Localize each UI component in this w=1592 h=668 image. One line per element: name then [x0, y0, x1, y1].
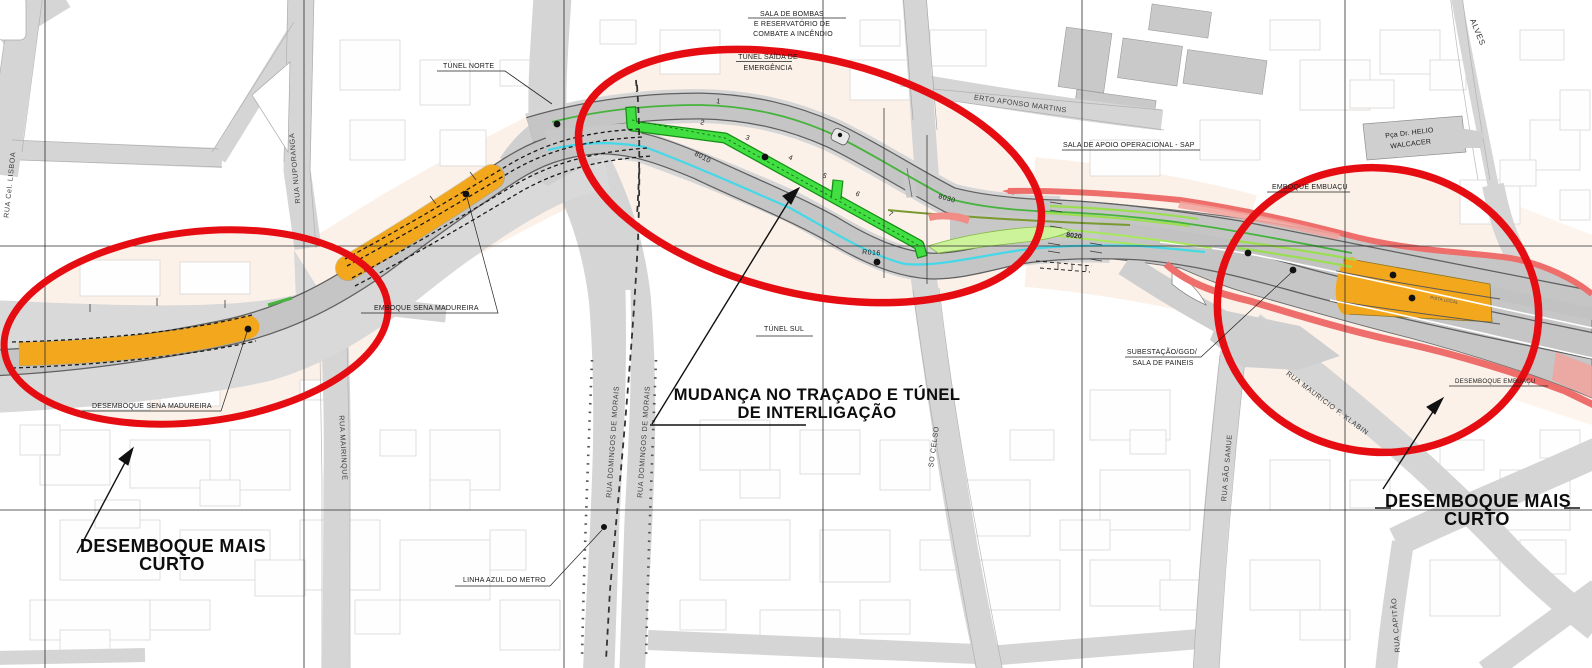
svg-text:CURTO: CURTO	[1444, 509, 1510, 529]
svg-text:EMBOQUE EMBUAÇU: EMBOQUE EMBUAÇU	[1272, 184, 1348, 191]
svg-text:EMERGÊNCIA: EMERGÊNCIA	[743, 63, 792, 72]
svg-text:SALA DE BOMBAS: SALA DE BOMBAS	[760, 11, 824, 18]
svg-text:SALA DE PAINEIS: SALA DE PAINEIS	[1132, 360, 1193, 367]
svg-text:CURTO: CURTO	[139, 554, 205, 574]
svg-text:EMBOQUE SENA MADUREIRA: EMBOQUE SENA MADUREIRA	[374, 305, 479, 312]
svg-text:E RESERVATÓRIO DE: E RESERVATÓRIO DE	[754, 19, 830, 28]
svg-text:DESEMBOQUE MAIS: DESEMBOQUE MAIS	[1385, 491, 1571, 511]
svg-text:DESEMBOQUE MAIS: DESEMBOQUE MAIS	[80, 536, 266, 556]
svg-text:MUDANÇA NO TRAÇADO E TÚNEL: MUDANÇA NO TRAÇADO E TÚNEL	[674, 385, 961, 404]
svg-text:SALA DE APOIO OPERACIONAL - SA: SALA DE APOIO OPERACIONAL - SAP	[1063, 142, 1195, 149]
svg-text:DESEMBOQUE SENA MADUREIRA: DESEMBOQUE SENA MADUREIRA	[92, 403, 212, 410]
svg-text:COMBATE A INCÊNDIO: COMBATE A INCÊNDIO	[753, 29, 833, 38]
svg-text:TÚNEL SAÍDA DE: TÚNEL SAÍDA DE	[738, 52, 798, 61]
svg-text:LINHA AZUL DO METRO: LINHA AZUL DO METRO	[463, 577, 546, 584]
svg-text:DESEMBOQUE EMBUAÇU: DESEMBOQUE EMBUAÇU	[1455, 378, 1536, 385]
svg-text:DE INTERLIGAÇÃO: DE INTERLIGAÇÃO	[737, 402, 896, 422]
svg-text:SUBESTAÇÃO/GGD/: SUBESTAÇÃO/GGD/	[1127, 347, 1197, 356]
svg-text:TÚNEL SUL: TÚNEL SUL	[764, 324, 804, 333]
svg-text:R016: R016	[862, 249, 881, 257]
svg-text:TÚNEL NORTE: TÚNEL NORTE	[443, 61, 494, 70]
